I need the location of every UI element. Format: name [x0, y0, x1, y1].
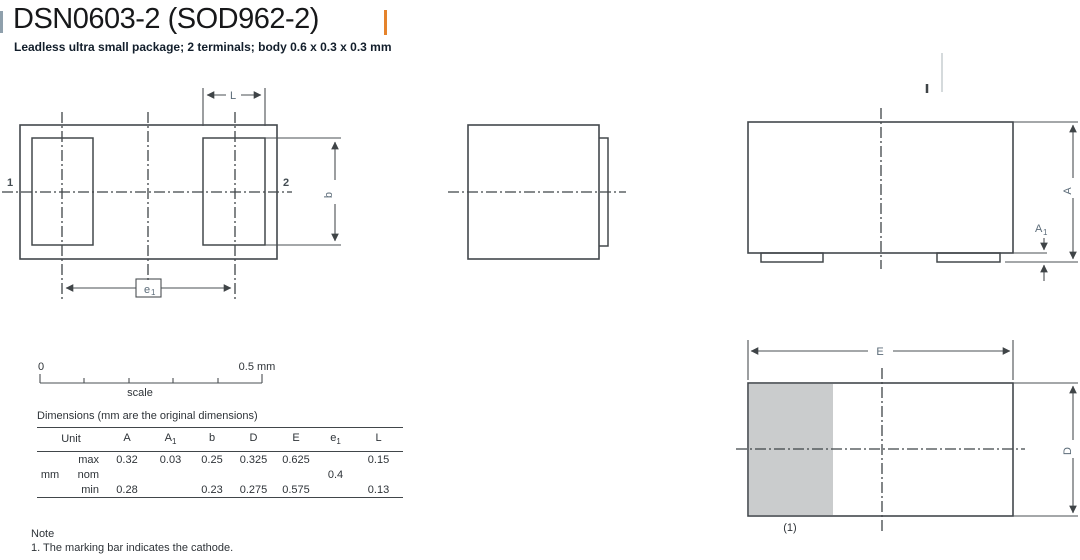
- dim-label-A1-sub: 1: [1043, 228, 1048, 237]
- cell-max-e1: [317, 452, 354, 468]
- col-e1: e1: [317, 428, 354, 452]
- cell-min-E: 0.575: [275, 482, 317, 498]
- dim-label-L: L: [230, 90, 236, 102]
- table-row-nom: nom 0.4: [37, 467, 403, 482]
- dim-label-E: E: [876, 346, 883, 358]
- dim-label-A1: A: [1035, 223, 1043, 235]
- cell-nom-A1: [149, 467, 192, 482]
- cell-max-A: 0.32: [105, 452, 149, 468]
- pin-2-label: 2: [283, 177, 289, 189]
- scale-ruler: [40, 374, 262, 383]
- cell-min-b: 0.23: [192, 482, 232, 498]
- cell-nom-b: [192, 467, 232, 482]
- cell-min-D: 0.275: [232, 482, 275, 498]
- note-heading: Note: [31, 527, 233, 541]
- cell-min-e1: [317, 482, 354, 498]
- dim-E: E: [748, 340, 1013, 380]
- page-subtitle: Leadless ultra small package; 2 terminal…: [14, 40, 392, 54]
- bottom-view-drawing: L b 1 2 e 1: [0, 80, 350, 310]
- dim-label-e1: e: [144, 284, 150, 296]
- page-title: DSN0603-2 (SOD962-2): [13, 3, 319, 36]
- note-item-1: 1. The marking bar indicates the cathode…: [31, 541, 233, 555]
- cell-nom-L: [354, 467, 403, 482]
- dim-L: L: [203, 88, 265, 126]
- table-row-max: mm max 0.32 0.03 0.25 0.325 0.625 0.15: [37, 452, 403, 468]
- side-view-drawing: [440, 100, 640, 270]
- col-E: E: [275, 428, 317, 452]
- unit-cell: mm: [37, 452, 63, 498]
- dim-label-e1-sub: 1: [151, 288, 156, 297]
- table-row-min: min 0.28 0.23 0.275 0.575 0.13: [37, 482, 403, 498]
- cell-min-A1: [149, 482, 192, 498]
- cell-max-E: 0.625: [275, 452, 317, 468]
- dim-label-A: A: [1062, 187, 1074, 195]
- cell-max-b: 0.25: [192, 452, 232, 468]
- dim-A: A: [1013, 122, 1078, 259]
- page-edge-mark: [0, 11, 3, 33]
- scale-bar: 0 0.5 mm scale: [28, 355, 288, 401]
- cell-max-A1: 0.03: [149, 452, 192, 468]
- table-header-row: Unit A A1 b D E e1 L: [37, 428, 403, 452]
- marking-note-ref: (1): [783, 522, 796, 534]
- dim-A1: A 1: [1035, 223, 1048, 281]
- title-accent-bar: [384, 10, 387, 35]
- row-label-nom: nom: [63, 467, 105, 482]
- cell-nom-A: [105, 467, 149, 482]
- cell-nom-D: [232, 467, 275, 482]
- dim-label-D: D: [1062, 447, 1074, 455]
- terminal-foot-left: [761, 253, 823, 262]
- row-label-max: max: [63, 452, 105, 468]
- note-block: Note 1. The marking bar indicates the ca…: [31, 527, 233, 555]
- col-A: A: [105, 428, 149, 452]
- scale-end-label: 0.5 mm: [239, 361, 276, 373]
- scale-label: scale: [127, 387, 153, 399]
- col-L: L: [354, 428, 403, 452]
- cell-nom-e1: 0.4: [317, 467, 354, 482]
- cell-min-A: 0.28: [105, 482, 149, 498]
- pin-1-label: 1: [7, 177, 13, 189]
- dimensions-caption: Dimensions (mm are the original dimensio…: [37, 410, 258, 422]
- top-view-drawing: E D (1): [720, 330, 1080, 545]
- dimensions-table: Unit A A1 b D E e1 L mm max 0.32 0.03 0.…: [37, 427, 403, 498]
- cell-max-L: 0.15: [354, 452, 403, 468]
- col-b: b: [192, 428, 232, 452]
- dim-label-b: b: [323, 192, 335, 198]
- centerlines: [2, 112, 292, 302]
- scale-start-label: 0: [38, 361, 44, 373]
- cell-min-L: 0.13: [354, 482, 403, 498]
- col-D: D: [232, 428, 275, 452]
- col-A1: A1: [149, 428, 192, 452]
- row-label-min: min: [63, 482, 105, 498]
- front-view-drawing: A A 1: [720, 45, 1080, 290]
- dim-e1: e 1: [66, 279, 231, 297]
- terminal-foot-right: [937, 253, 1000, 262]
- cell-max-D: 0.325: [232, 452, 275, 468]
- cell-nom-E: [275, 467, 317, 482]
- col-unit: Unit: [37, 428, 105, 452]
